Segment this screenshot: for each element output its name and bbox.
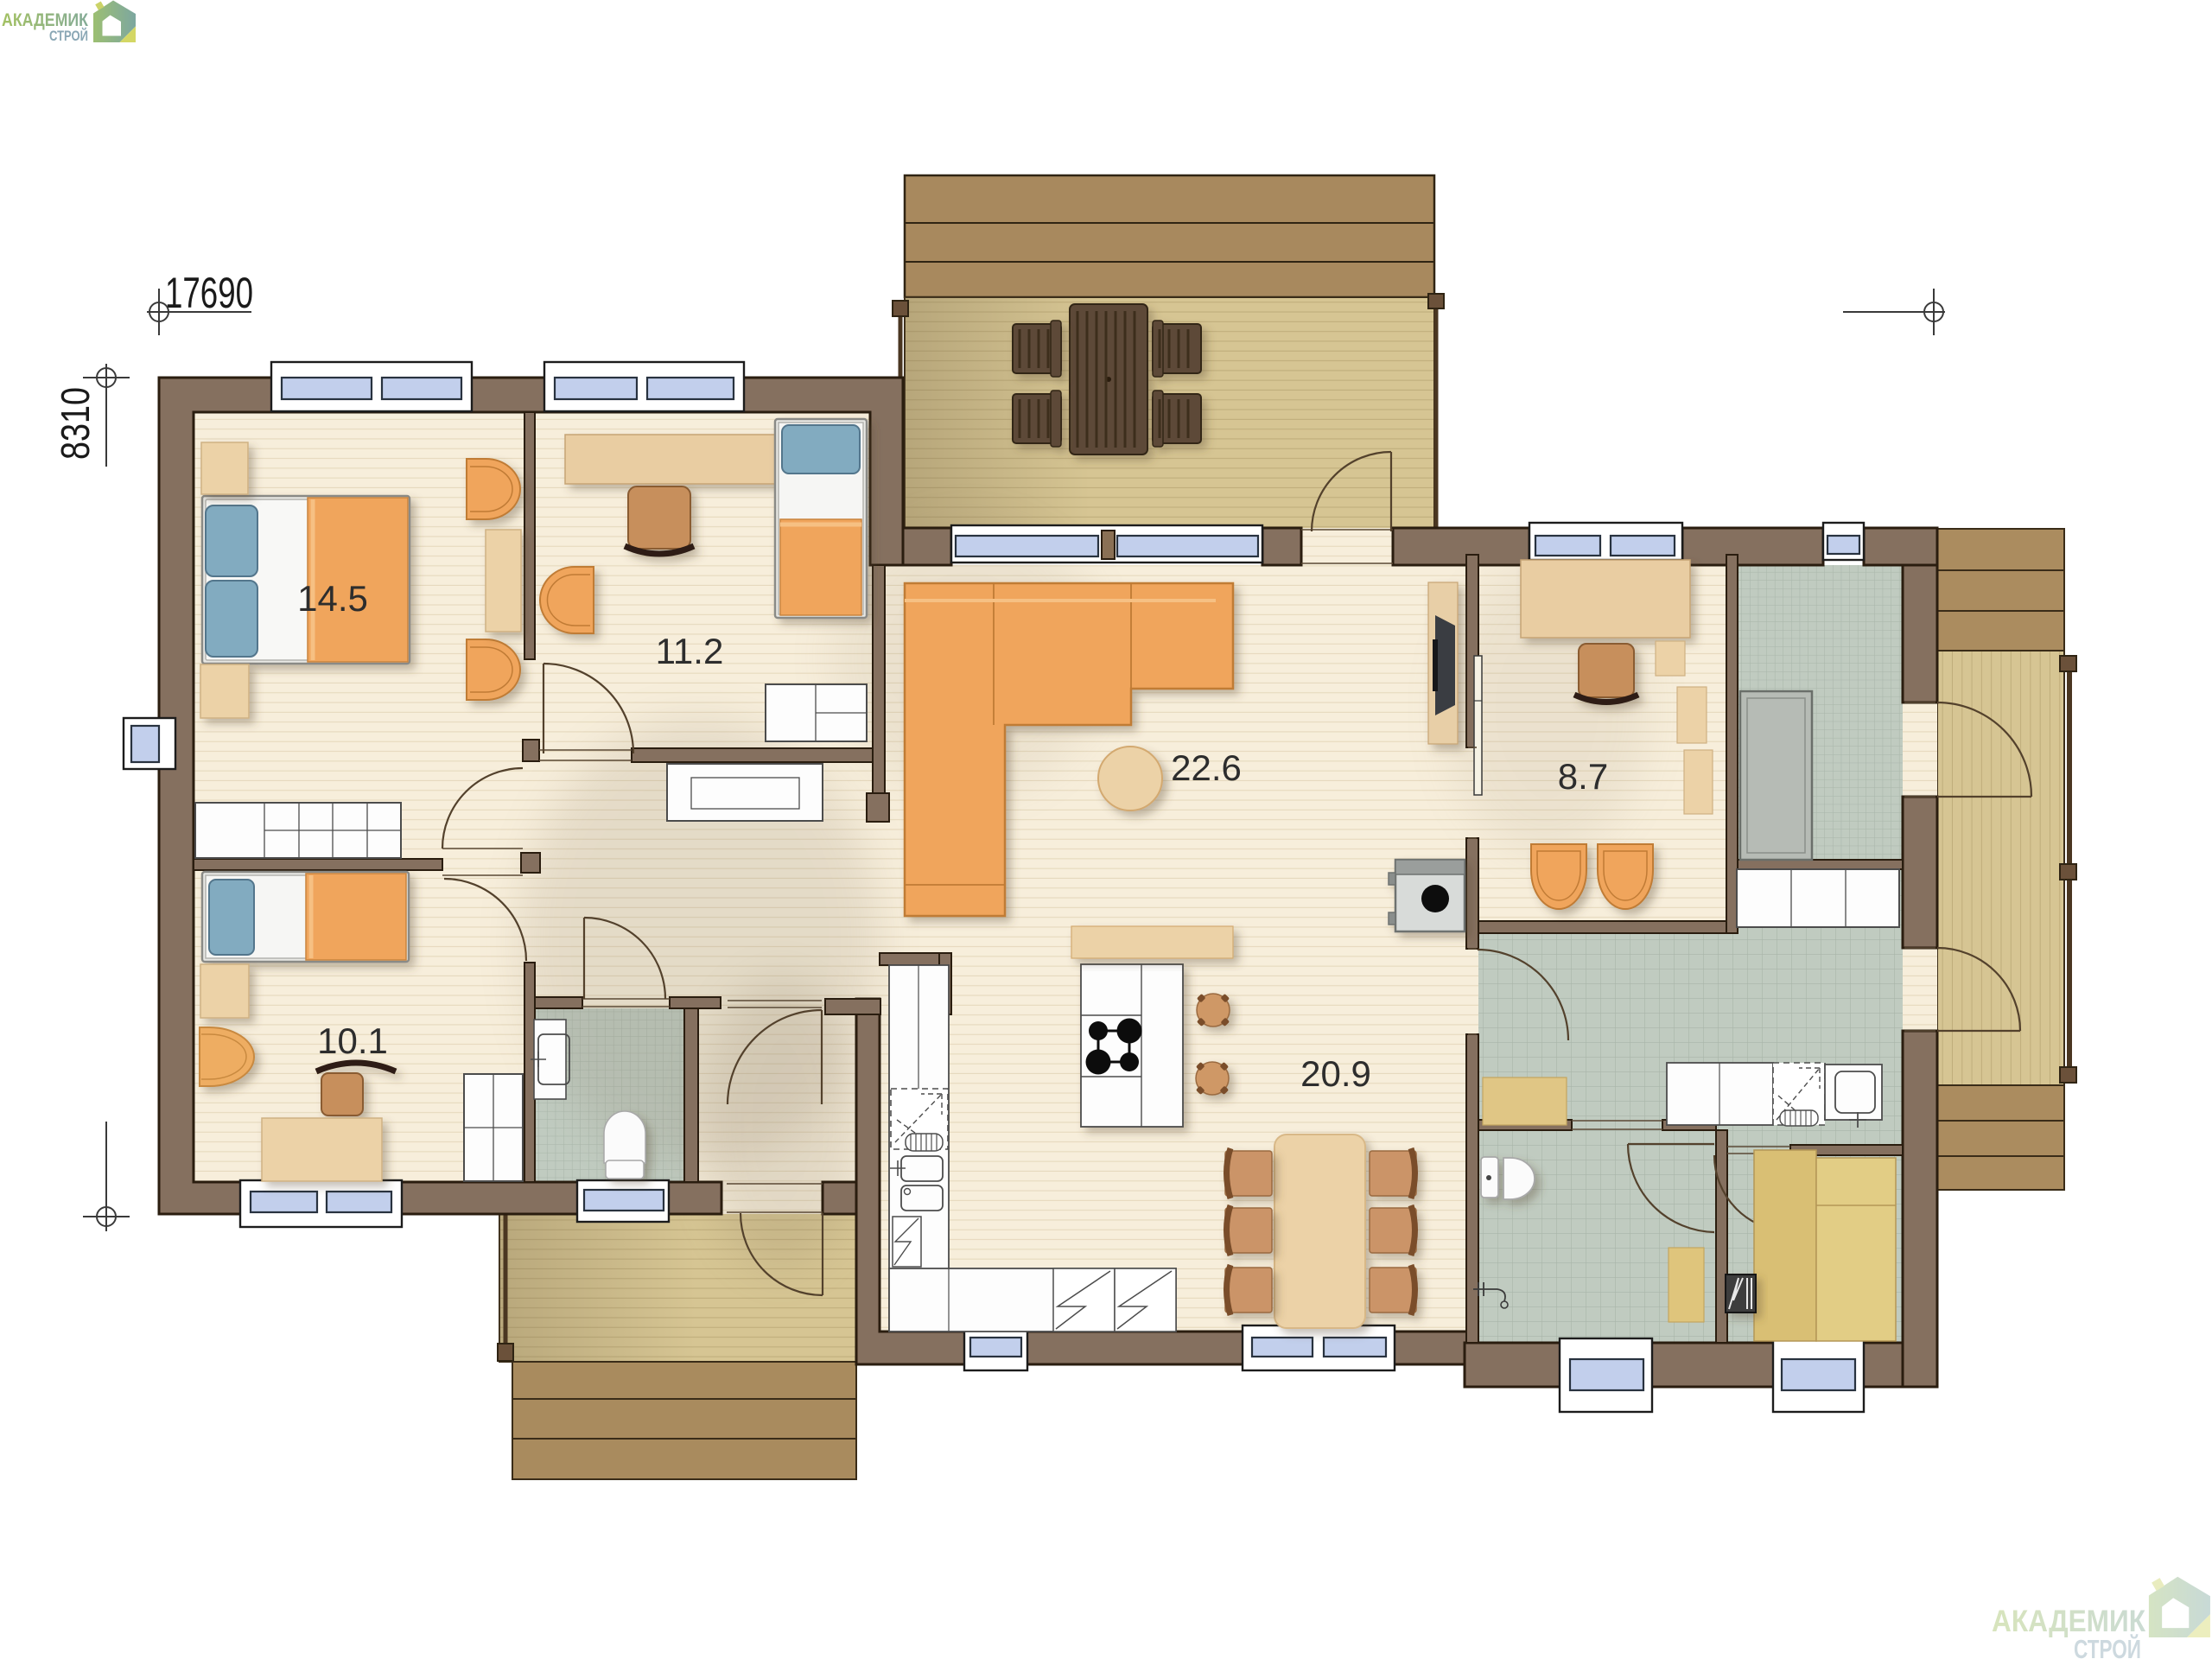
svg-text:8310: 8310 [53,387,98,460]
svg-text:22.6: 22.6 [1171,747,1242,788]
svg-text:14.5: 14.5 [297,578,368,619]
svg-text:10.1: 10.1 [317,1020,388,1061]
svg-text:17690: 17690 [165,269,253,317]
svg-text:8.7: 8.7 [1558,756,1608,797]
svg-text:20.9: 20.9 [1300,1053,1371,1094]
svg-text:11.2: 11.2 [656,631,724,671]
svg-text:СТРОЙ: СТРОЙ [49,28,88,44]
svg-text:СТРОЙ: СТРОЙ [2074,1633,2141,1659]
